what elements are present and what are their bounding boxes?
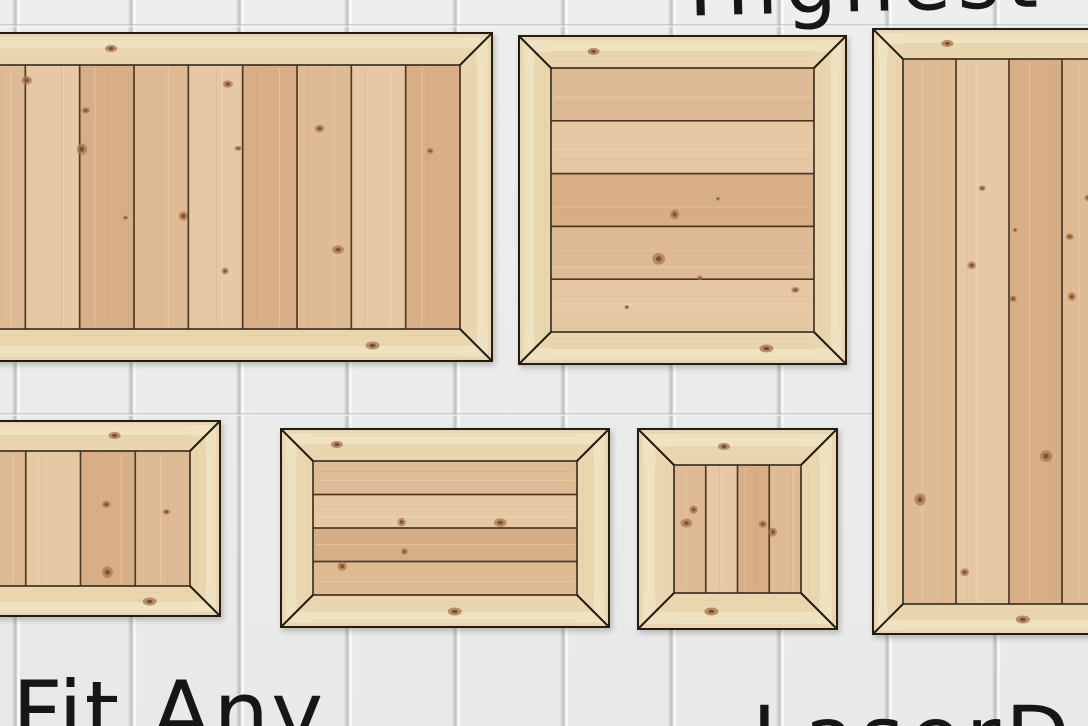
plank	[551, 226, 814, 279]
plank	[903, 59, 956, 604]
frame-small-square-bottom	[637, 428, 838, 630]
frame-square-top-middle	[518, 35, 847, 365]
frame-tall-rectangle-right	[872, 28, 1088, 635]
plank	[406, 65, 460, 329]
plank	[135, 451, 190, 586]
frame-graphic	[280, 428, 610, 628]
frame-large-rectangle-top-left	[0, 32, 493, 362]
plank	[25, 65, 79, 329]
plank	[134, 65, 188, 329]
plank	[243, 65, 297, 329]
plank	[297, 65, 351, 329]
caption-bottom-right-partial: LaserD	[752, 688, 1075, 726]
plank	[1009, 59, 1062, 604]
product-photo-wood-frames: Highest Fit Any LaserD	[0, 0, 1088, 726]
plank	[81, 451, 136, 586]
plank	[313, 562, 577, 596]
frame-graphic	[637, 428, 838, 630]
plank	[313, 461, 577, 495]
plank	[551, 174, 814, 227]
plank	[313, 495, 577, 529]
frame-graphic	[518, 35, 847, 365]
plank	[1062, 59, 1088, 604]
plank	[956, 59, 1009, 604]
frame-small-rectangle-bottom-left	[0, 420, 221, 617]
caption-bottom-left-partial: Fit Any	[12, 662, 325, 726]
plank	[674, 465, 706, 593]
plank	[351, 65, 405, 329]
plank	[738, 465, 770, 593]
plank	[0, 65, 25, 329]
plank	[26, 451, 81, 586]
plank	[551, 279, 814, 332]
frame-rectangle-bottom-middle	[280, 428, 610, 628]
frame-graphic	[872, 28, 1088, 635]
plank	[80, 65, 134, 329]
plank	[551, 121, 814, 174]
plank	[188, 65, 242, 329]
plank	[551, 68, 814, 121]
frame-graphic	[0, 420, 221, 617]
frame-graphic	[0, 32, 493, 362]
